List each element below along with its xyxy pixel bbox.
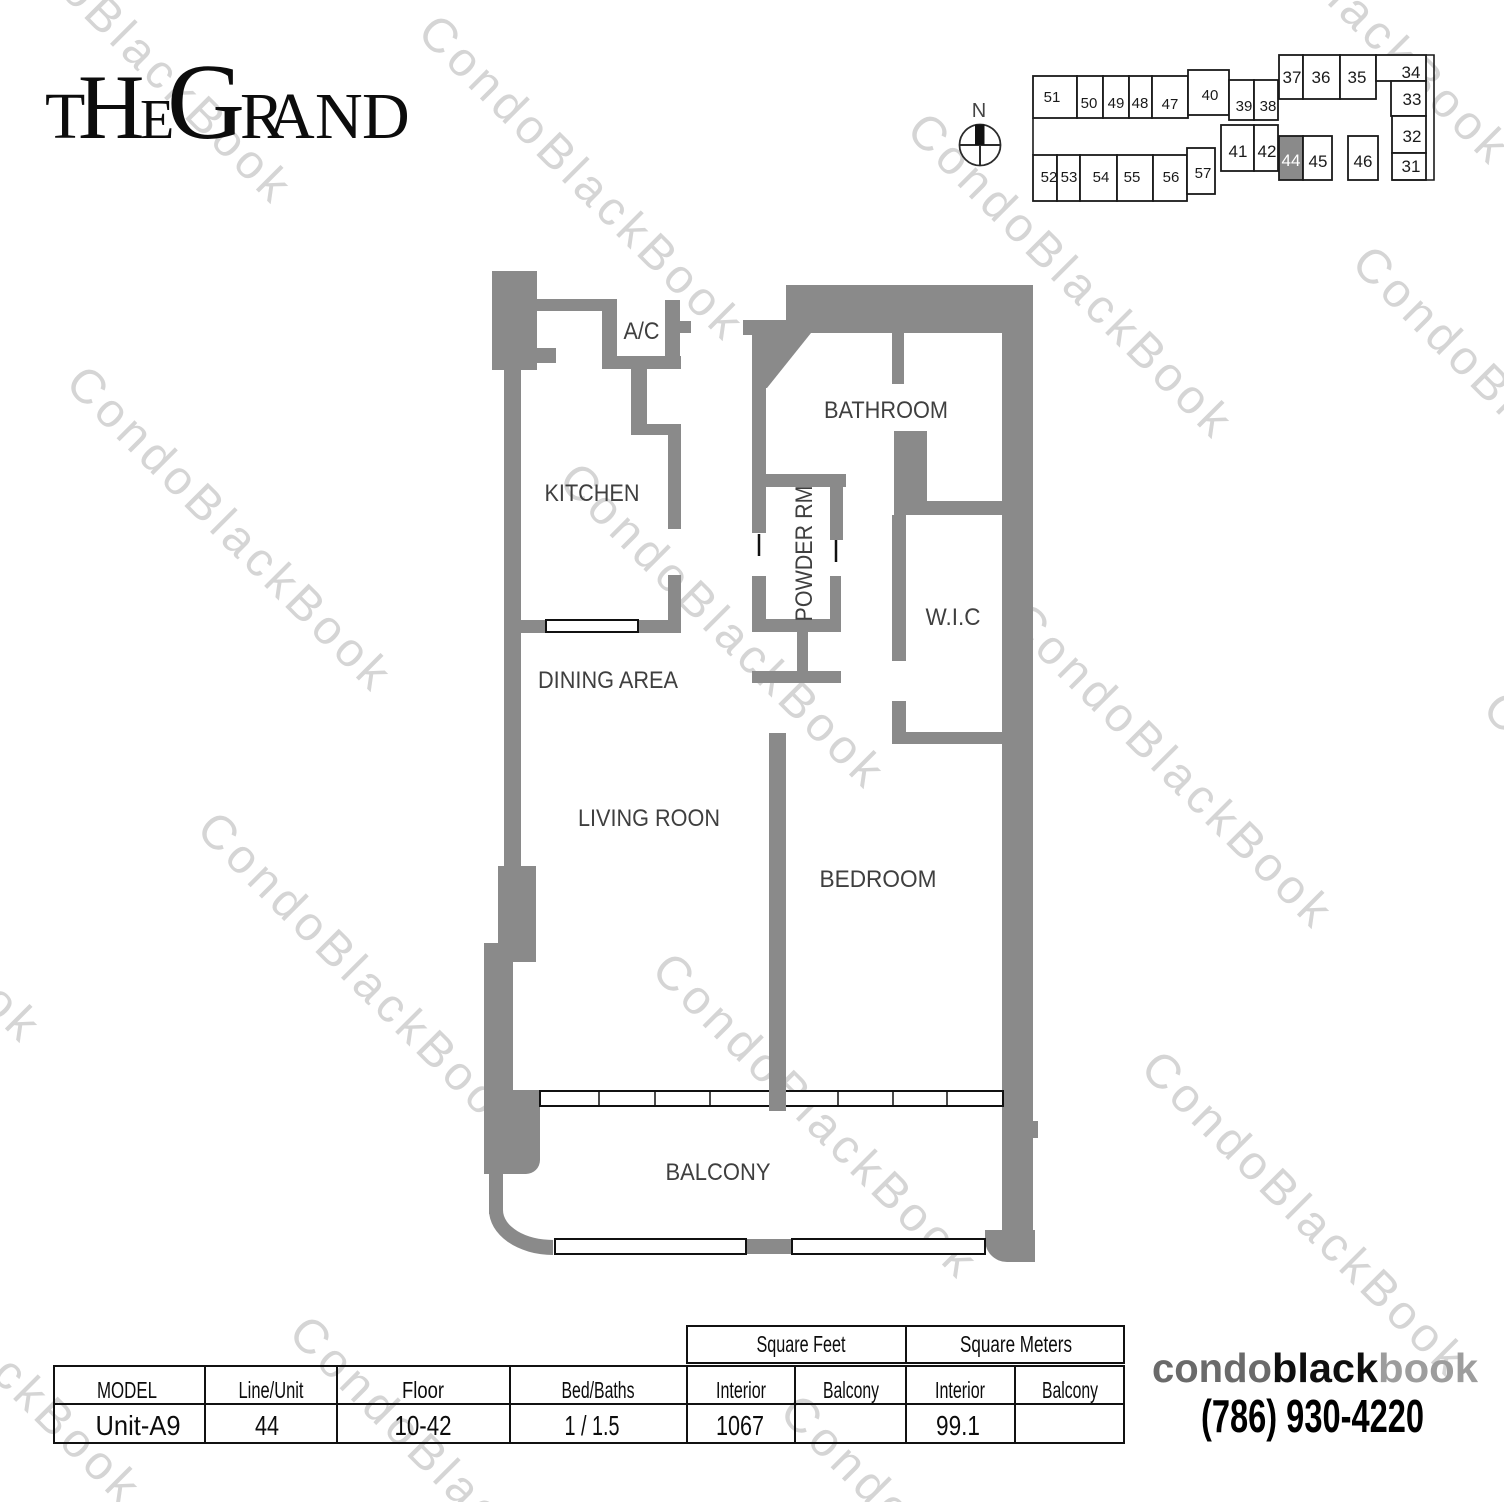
svg-text:50: 50 (1081, 95, 1098, 112)
svg-text:Interior: Interior (716, 1377, 766, 1403)
svg-text:53: 53 (1061, 169, 1078, 186)
svg-text:H: H (78, 56, 144, 158)
svg-text:CondoBlackBook: CondoBlackBook (56, 356, 401, 701)
svg-text:32: 32 (1403, 127, 1422, 146)
svg-text:44: 44 (255, 1410, 279, 1441)
svg-text:W.I.C: W.I.C (926, 604, 981, 631)
svg-text:Line/Unit: Line/Unit (239, 1377, 304, 1403)
svg-text:35: 35 (1348, 68, 1367, 87)
svg-text:48: 48 (1132, 95, 1149, 112)
svg-text:99.1: 99.1 (936, 1410, 980, 1441)
svg-text:POWDER RM: POWDER RM (791, 486, 818, 622)
svg-text:49: 49 (1108, 95, 1125, 112)
svg-text:1067: 1067 (716, 1410, 764, 1441)
svg-text:N: N (972, 100, 986, 122)
svg-text:CondoBlackBook: CondoBlackBook (1131, 1041, 1476, 1386)
svg-text:Unit-A9: Unit-A9 (96, 1410, 181, 1441)
svg-text:Balcony: Balcony (823, 1377, 879, 1403)
svg-text:52: 52 (1041, 169, 1058, 186)
svg-text:Floor: Floor (402, 1377, 444, 1403)
svg-text:36: 36 (1312, 68, 1331, 87)
svg-text:CondoBlackBook: CondoBlackBook (642, 943, 987, 1288)
svg-text:56: 56 (1163, 169, 1180, 186)
svg-text:BATHROOM: BATHROOM (824, 397, 948, 424)
svg-text:10-42: 10-42 (395, 1410, 452, 1441)
svg-text:Square Feet: Square Feet (757, 1331, 846, 1357)
svg-text:D: D (362, 80, 410, 153)
svg-text:31: 31 (1402, 157, 1421, 176)
svg-text:BEDROOM: BEDROOM (820, 866, 937, 893)
svg-text:DINING AREA: DINING AREA (538, 667, 678, 694)
svg-text:42: 42 (1258, 142, 1277, 161)
svg-text:BALCONY: BALCONY (666, 1159, 771, 1186)
svg-text:MODEL: MODEL (97, 1377, 157, 1403)
svg-text:40: 40 (1202, 87, 1219, 104)
svg-text:A: A (267, 80, 315, 153)
svg-text:N: N (315, 80, 363, 153)
svg-text:condoblackbook: condoblackbook (1152, 1345, 1478, 1391)
svg-text:G: G (167, 43, 245, 162)
svg-text:CondoBlackBook: CondoBlackBook (1342, 236, 1504, 581)
svg-text:57: 57 (1195, 165, 1212, 182)
svg-text:Balcony: Balcony (1042, 1377, 1098, 1403)
svg-text:55: 55 (1124, 169, 1141, 186)
svg-text:38: 38 (1260, 98, 1277, 115)
svg-text:CondoBlackBook: CondoBlackBook (408, 5, 753, 350)
svg-text:47: 47 (1162, 96, 1179, 113)
svg-text:51: 51 (1044, 89, 1061, 106)
svg-text:41: 41 (1229, 142, 1248, 161)
svg-text:44: 44 (1282, 151, 1301, 170)
svg-text:Square Meters: Square Meters (960, 1331, 1072, 1357)
svg-text:54: 54 (1093, 169, 1110, 186)
svg-text:33: 33 (1403, 90, 1422, 109)
svg-text:CondoBlackBook: CondoBlackBook (997, 593, 1342, 938)
svg-text:46: 46 (1354, 152, 1373, 171)
svg-text:LIVING ROON: LIVING ROON (578, 805, 720, 832)
svg-text:37: 37 (1283, 68, 1302, 87)
svg-text:1 / 1.5: 1 / 1.5 (565, 1410, 620, 1441)
svg-text:CondoBlackBook: CondoBlackBook (0, 1169, 150, 1502)
svg-text:Interior: Interior (935, 1377, 985, 1403)
svg-text:39: 39 (1236, 98, 1253, 115)
svg-text:CondoBlackBook: CondoBlackBook (1473, 682, 1504, 1027)
svg-text:CondoBlackBook: CondoBlackBook (187, 802, 532, 1147)
svg-text:KITCHEN: KITCHEN (545, 480, 640, 507)
svg-text:CondoBlackBook: CondoBlackBook (0, 707, 50, 1052)
svg-text:45: 45 (1309, 152, 1328, 171)
svg-text:34: 34 (1402, 63, 1421, 82)
svg-text:(786) 930-4220: (786) 930-4220 (1201, 1390, 1424, 1442)
svg-text:Bed/Baths: Bed/Baths (562, 1377, 635, 1403)
svg-text:A/C: A/C (624, 318, 660, 345)
